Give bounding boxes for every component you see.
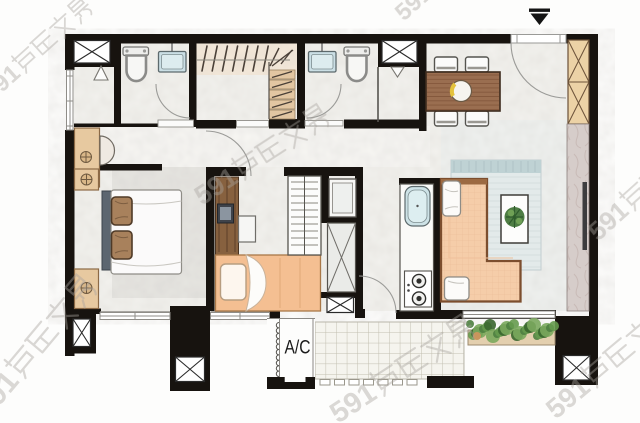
svg-text:A/C: A/C	[285, 336, 311, 358]
